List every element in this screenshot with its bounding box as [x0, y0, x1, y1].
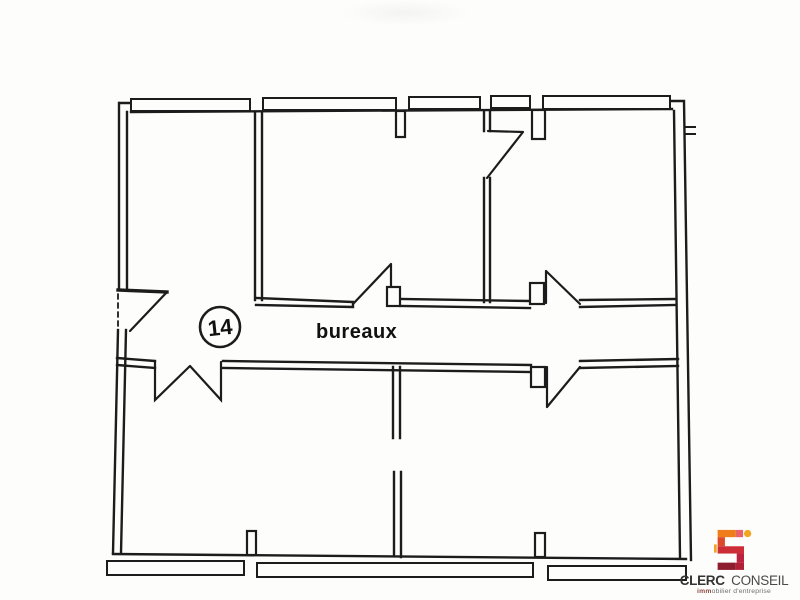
- company-name-primary: CLERC: [680, 573, 725, 588]
- unit-number-label: 14: [207, 314, 235, 342]
- company-name-secondary: CONSEIL: [731, 573, 788, 588]
- room-label: bureaux: [316, 321, 397, 343]
- company-logo: CLERC CONSEIL immobilier d'entreprise: [674, 527, 794, 596]
- company-tagline-rest: obilier d'entreprise: [712, 588, 771, 595]
- company-tagline-bold: imm: [697, 588, 712, 595]
- unit-number-badge: 14: [200, 307, 240, 347]
- floor-plan-drawing: 14 bureaux: [0, 0, 800, 600]
- clerc-conseil-logo-mark-icon: [714, 527, 754, 571]
- company-tagline: immobilier d'entreprise: [674, 589, 794, 596]
- scanned-floor-plan-page: 14 bureaux CLERC CONSEIL immobilier d'en…: [0, 0, 800, 600]
- company-name: CLERC CONSEIL: [674, 574, 794, 588]
